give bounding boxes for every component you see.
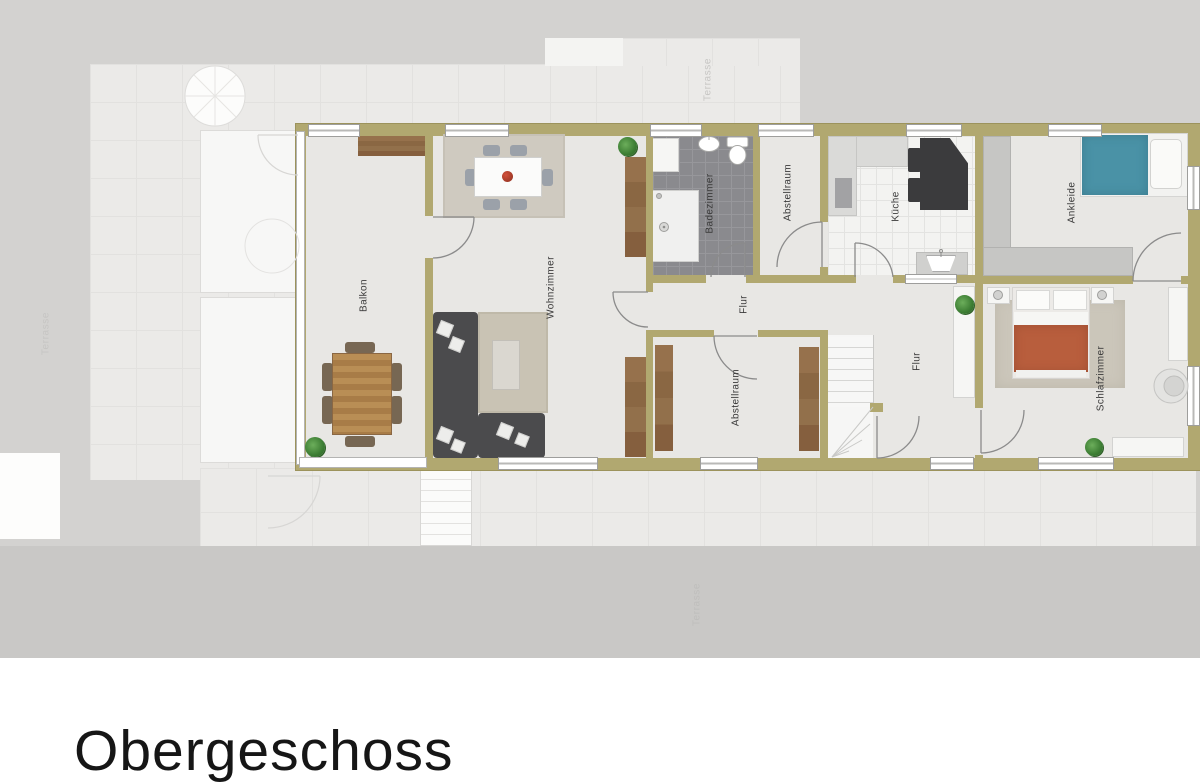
room-label-flur-rechts: Flur — [912, 322, 923, 402]
toilet-icon — [727, 137, 748, 165]
plan-stroke-overlay — [0, 0, 1200, 658]
room-label-wohnzimmer: Wohnzimmer — [546, 248, 557, 328]
room-label-balkon: Balkon — [359, 256, 370, 336]
plan-canvas: Balkon Wohnzimmer Badezimmer Abstellraum… — [0, 0, 1200, 658]
room-label-abstellraum-oben: Abstellraum — [783, 153, 794, 233]
spiral-stair-icon — [185, 66, 245, 126]
outdoor-label-terrasse-links: Terrasse — [41, 294, 52, 374]
caption-area: Obergeschoss — [0, 658, 1200, 776]
floor-title: Obergeschoss — [74, 718, 454, 784]
room-label-badezimmer: Badezimmer — [705, 164, 716, 244]
outdoor-label-terrasse-oben: Terrasse — [703, 40, 714, 120]
ghost-table — [245, 219, 299, 273]
bath-sink-icon — [699, 137, 720, 152]
room-label-abstellraum-unten: Abstellraum — [731, 358, 742, 438]
shower-drain-icon — [657, 194, 669, 232]
room-label-schlafzimmer: Schlafzimmer — [1096, 339, 1107, 419]
room-label-flur-oben: Flur — [739, 265, 750, 345]
kitchen-tap-icon — [940, 250, 943, 258]
ghost-door-arcs — [258, 135, 320, 528]
staircase-winders — [832, 335, 874, 457]
lamp-icons — [994, 291, 1107, 300]
room-label-kueche: Küche — [891, 167, 902, 247]
room-label-ankleide: Ankleide — [1067, 163, 1078, 243]
floorplan-screenshot: { "title": "Obergeschoss", "plan": { "ro… — [0, 0, 1200, 776]
outdoor-label-terrasse-unten: Terrasse — [692, 565, 703, 645]
bedroom-armchair — [1154, 369, 1188, 403]
